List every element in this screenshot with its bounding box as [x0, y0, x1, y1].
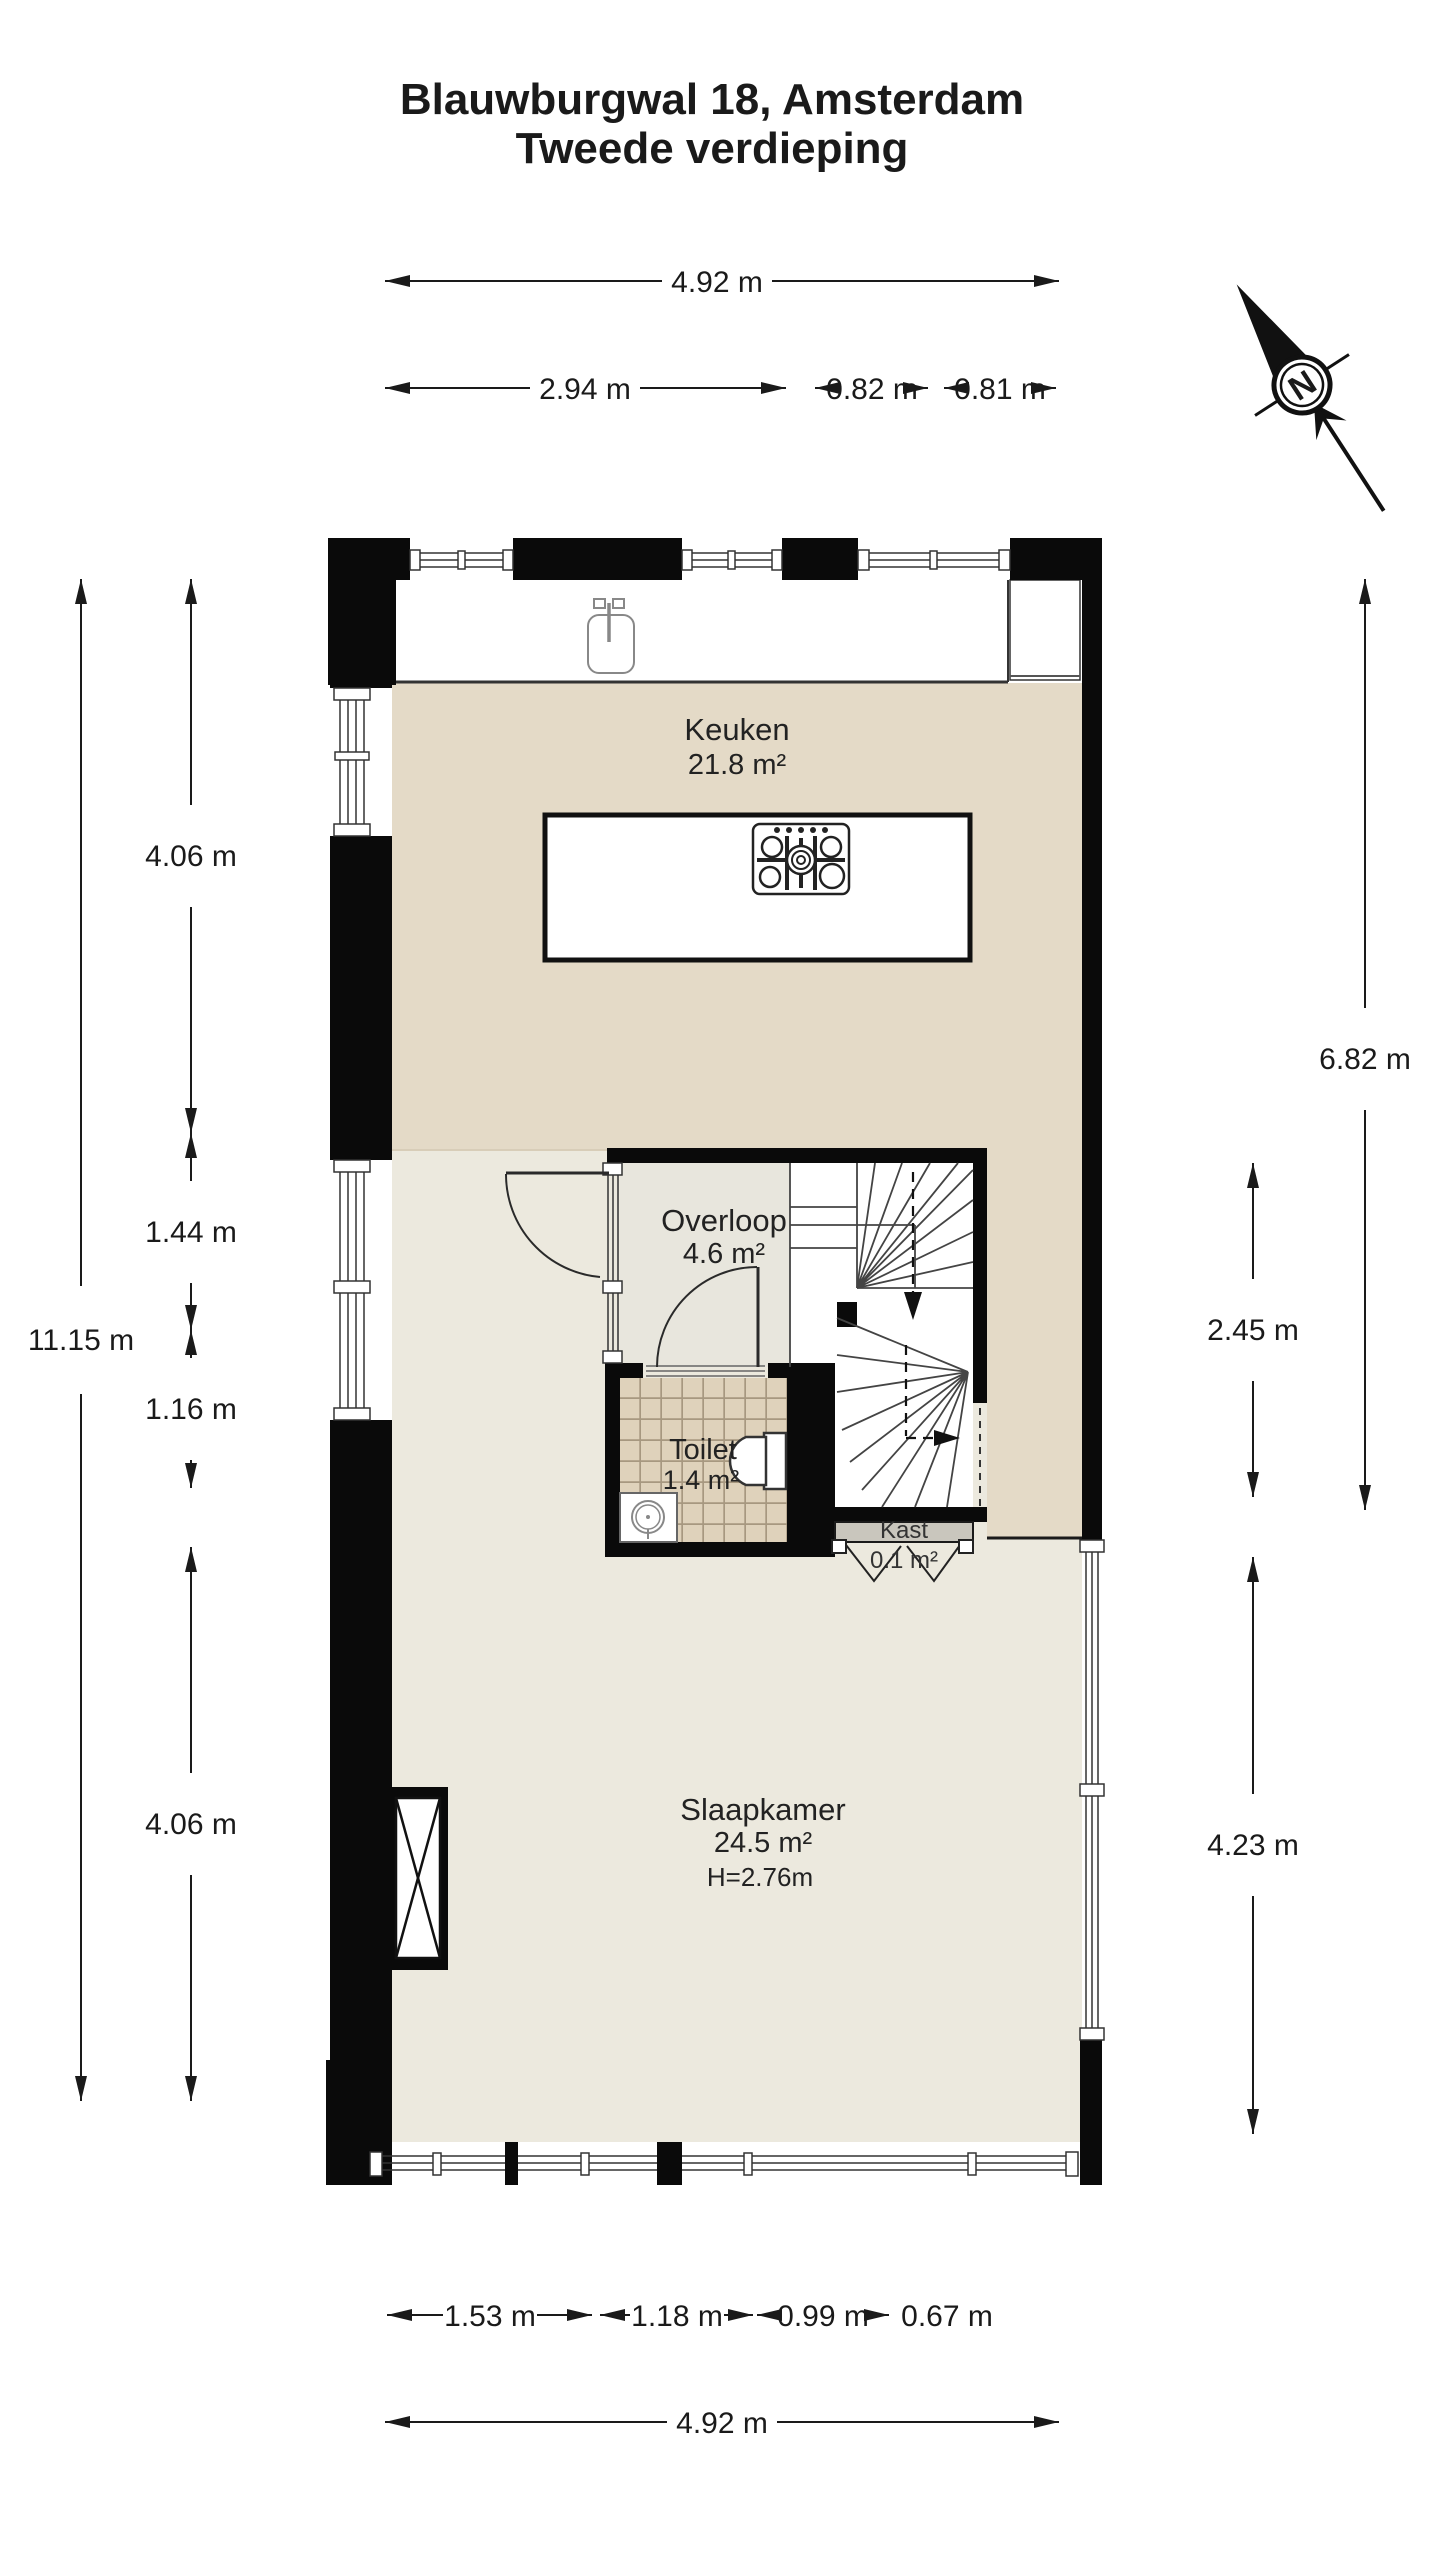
washbasin-icon — [620, 1493, 677, 1542]
bottom-window-band — [382, 2156, 1066, 2170]
kitchen-counter — [396, 580, 1008, 682]
dim-top-total: 4.92 m — [671, 266, 763, 299]
stove-icon — [753, 824, 849, 894]
dim-top-mid: 0.82 m — [826, 373, 918, 406]
keuken-floor-strip — [987, 1150, 1082, 1538]
page-title: Blauwburgwal 18, Amsterdam Tweede verdie… — [400, 75, 1024, 173]
dim-left-total: 11.15 m — [28, 1324, 134, 1357]
north-compass-icon: N — [1190, 254, 1431, 541]
toilet-bottom-wall — [605, 1542, 835, 1557]
toilet-right-wall — [787, 1363, 835, 1557]
slaapkamer-area: 24.5 m² — [714, 1827, 813, 1859]
dim-bottom-w2: 1.18 m — [631, 2300, 723, 2333]
dim-bottom-w4: 0.67 m — [901, 2300, 993, 2333]
dim-top-left: 2.94 m — [539, 373, 631, 406]
top-left-corner-wall — [328, 538, 396, 685]
dim-left-toilet: 1.16 m — [145, 1393, 237, 1426]
dim-bottom-w3: 0.99 m — [777, 2300, 869, 2333]
dim-left-slaapkamer: 4.06 m — [145, 1808, 237, 1841]
shaft-icon — [396, 1798, 440, 1958]
toilet-left-wall — [605, 1363, 620, 1557]
overloop-top-wall — [607, 1148, 987, 1163]
dim-left-keuken: 4.06 m — [145, 840, 237, 873]
overloop-area: 4.6 m² — [683, 1238, 766, 1270]
bottom-right-corner-wall — [1080, 2040, 1102, 2185]
dim-bottom-w1: 1.53 m — [444, 2300, 536, 2333]
kast-label: Kast — [880, 1517, 928, 1544]
right-wall — [1082, 580, 1102, 1540]
kast-area: 0.1 m² — [870, 1547, 938, 1574]
stairwell-right-wall — [973, 1163, 987, 1403]
title-line-1: Blauwburgwal 18, Amsterdam — [400, 75, 1024, 124]
floorplan-drawing: Blauwburgwal 18, Amsterdam Tweede verdie… — [0, 0, 1440, 2560]
keuken-area: 21.8 m² — [688, 749, 787, 781]
keuken-label: Keuken — [684, 712, 789, 747]
dim-right-upper: 6.82 m — [1319, 1043, 1411, 1076]
toilet-area: 1.4 m² — [663, 1465, 740, 1495]
dim-bottom-total: 4.92 m — [676, 2407, 768, 2440]
dim-right-stairs: 2.45 m — [1207, 1314, 1299, 1347]
slaapkamer-label: Slaapkamer — [680, 1792, 845, 1827]
dim-right-slaapkamer: 4.23 m — [1207, 1829, 1299, 1862]
kitchen-cabinet — [1010, 580, 1080, 680]
dim-top-right: 0.81 m — [954, 373, 1046, 406]
toilet-label: Toilet — [669, 1434, 737, 1466]
title-line-2: Tweede verdieping — [516, 124, 909, 173]
overloop-label: Overloop — [661, 1203, 787, 1238]
slaapkamer-height: H=2.76m — [707, 1862, 813, 1892]
floorplan-page: Blauwburgwal 18, Amsterdam Tweede verdie… — [0, 0, 1440, 2560]
dim-left-overloop: 1.44 m — [145, 1216, 237, 1249]
